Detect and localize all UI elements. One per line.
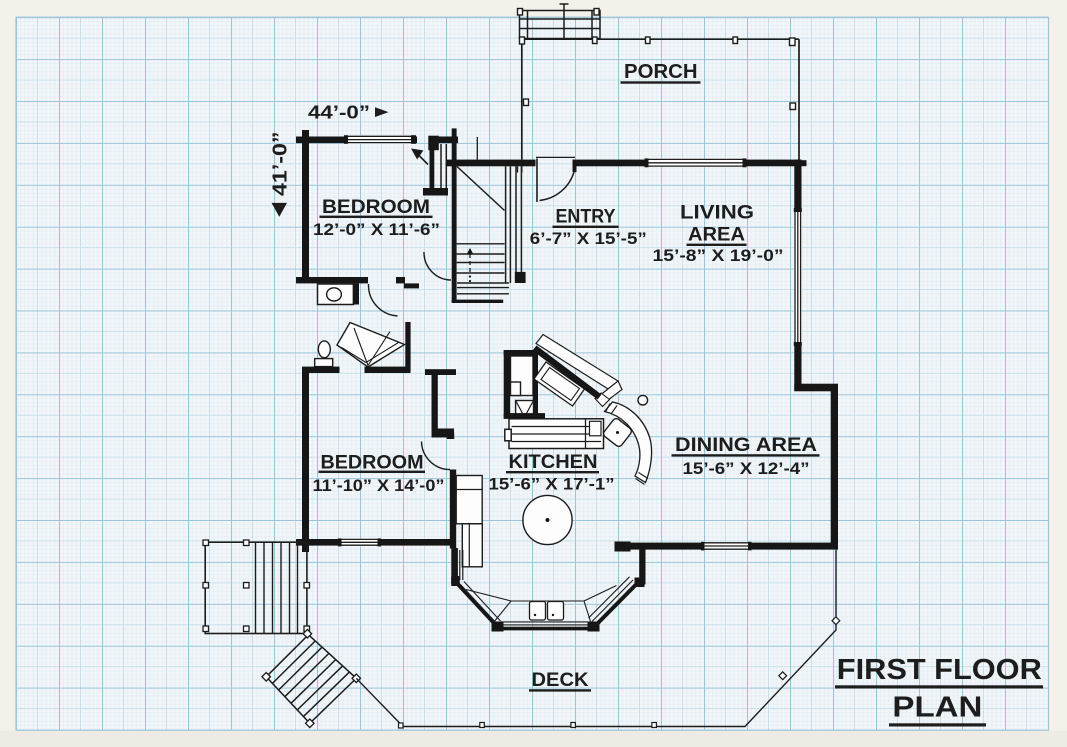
- svg-text:12’-0” X 11’-6”: 12’-0” X 11’-6”: [313, 221, 440, 239]
- svg-text:FIRST FLOOR: FIRST FLOOR: [837, 654, 1042, 686]
- svg-text:44’-0”: 44’-0”: [308, 102, 370, 123]
- svg-text:KITCHEN: KITCHEN: [509, 451, 598, 473]
- svg-text:BEDROOM: BEDROOM: [322, 196, 430, 218]
- svg-text:6’-7” X 15’-5”: 6’-7” X 15’-5”: [530, 230, 647, 248]
- svg-text:DECK: DECK: [532, 669, 589, 691]
- svg-text:41’-0”: 41’-0”: [270, 132, 292, 197]
- svg-text:LIVING: LIVING: [680, 202, 754, 224]
- svg-text:ENTRY: ENTRY: [556, 206, 616, 228]
- svg-text:PLAN: PLAN: [892, 692, 982, 724]
- svg-text:15’-6” X 12’-4”: 15’-6” X 12’-4”: [683, 460, 810, 478]
- svg-text:15’-6” X 17’-1”: 15’-6” X 17’-1”: [489, 476, 615, 494]
- svg-text:11’-10” X 14’-0”: 11’-10” X 14’-0”: [313, 477, 445, 495]
- svg-text:DINING AREA: DINING AREA: [675, 434, 817, 456]
- svg-text:15’-8” X 19’-0”: 15’-8” X 19’-0”: [653, 247, 784, 265]
- svg-text:BEDROOM: BEDROOM: [321, 452, 424, 474]
- svg-text:PORCH: PORCH: [624, 61, 698, 83]
- svg-text:AREA: AREA: [688, 224, 745, 246]
